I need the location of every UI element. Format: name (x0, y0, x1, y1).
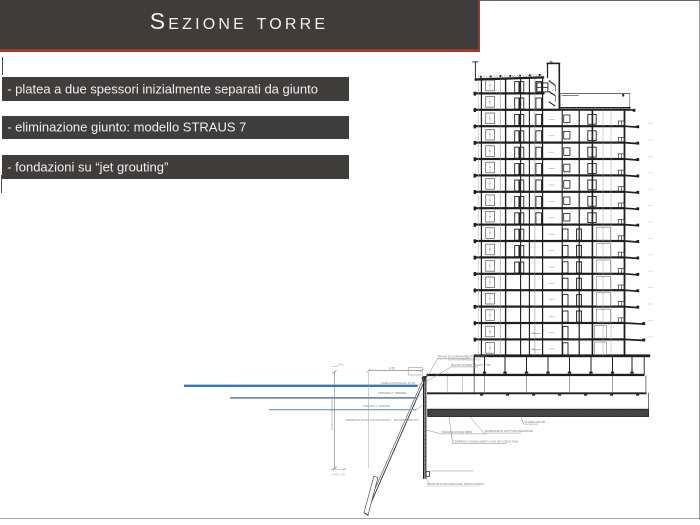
svg-text:LIVELLO DI FALDA -12.00: LIVELLO DI FALDA -12.00 (381, 381, 416, 385)
svg-text:TIRANTE 3° ORDINE: TIRANTE 3° ORDINE (362, 404, 390, 408)
svg-text:PARATIA DI MICROPALI: PARATIA DI MICROPALI (330, 396, 334, 430)
svg-text:TERRENO CONSOLIDATO CON JET GR: TERRENO CONSOLIDATO CON JET GROUTING (453, 440, 519, 444)
svg-text:TERRENO NON CONSOLIDATO - RITO: TERRENO NON CONSOLIDATO - RITOMBAMENTO (345, 418, 419, 422)
svg-text:PARATIA DI PALI Ø800: PARATIA DI PALI Ø800 (442, 430, 473, 434)
svg-text:4.50: 4.50 (389, 366, 395, 370)
svg-text:-4.00: -4.00 (337, 362, 344, 366)
svg-text:MAGRONE DI SOTTOFONDAZIONE: MAGRONE DI SOTTOFONDAZIONE (485, 429, 533, 433)
svg-text:PLATEA SP.100: PLATEA SP.100 (525, 420, 546, 424)
svg-text:TIRANTE 2° ORDINE: TIRANTE 2° ORDINE (378, 391, 406, 395)
svg-text:QUOTA FONDO SCAVO -7.50: QUOTA FONDO SCAVO -7.50 (451, 363, 491, 367)
svg-text:TRAVE DI CORONAMENTO PARATIA: TRAVE DI CORONAMENTO PARATIA (438, 354, 488, 358)
svg-text:TIRANTE DI ANCORAGGIO PROVVISO: TIRANTE DI ANCORAGGIO PROVVISORIO (427, 482, 485, 486)
svg-text:0.80 1.20: 0.80 1.20 (332, 473, 345, 477)
